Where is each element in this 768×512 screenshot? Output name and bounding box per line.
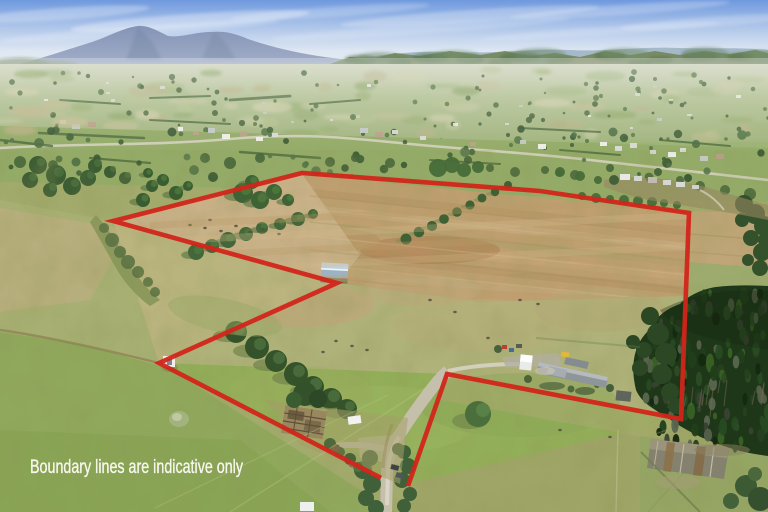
svg-text:Boundary lines are indicative: Boundary lines are indicative only <box>30 456 243 478</box>
